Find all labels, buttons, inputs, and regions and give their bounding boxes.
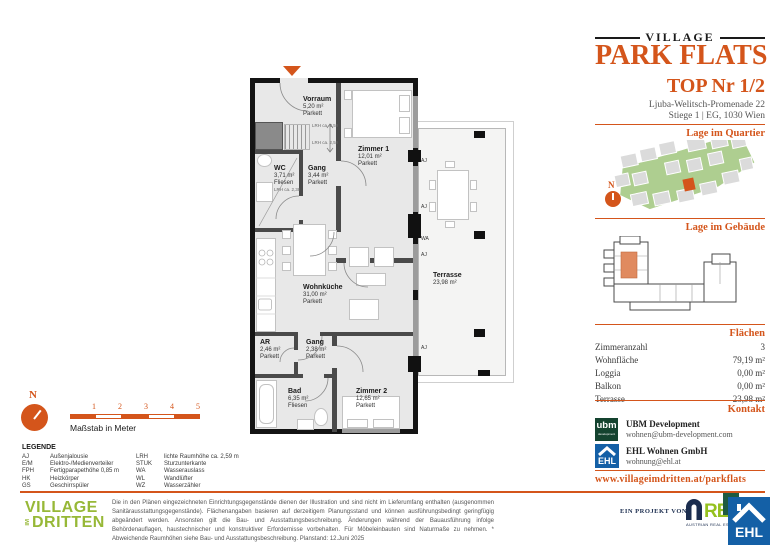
room-label-bad: Bad6,35 m²Fliesen bbox=[288, 388, 308, 410]
building-plan bbox=[600, 236, 750, 320]
ehl-logo: EHL bbox=[595, 444, 619, 468]
area-label: Balkon bbox=[595, 380, 621, 393]
ubm-logo-subtext: development bbox=[595, 433, 618, 436]
scale-tick: 2 bbox=[96, 402, 122, 411]
legend-row: HKHeizkörper bbox=[22, 476, 122, 483]
legend-row: WLWandlüfter bbox=[136, 476, 246, 483]
legend-row: LRHlichte Raumhöhe ca. 2,59 m bbox=[136, 454, 246, 461]
scalebar bbox=[70, 414, 200, 419]
village-im-dritten-logo: VILLAGE IM DRITTEN bbox=[25, 500, 105, 530]
areas-table: Zimmeranzahl 3 Wohnfläche 79,19 m² Loggi… bbox=[595, 341, 765, 406]
scalebar-caption: Maßstab in Meter bbox=[70, 423, 136, 433]
room-label-wohnkueche: Wohnküche31,00 m²Parkett bbox=[303, 284, 343, 306]
room-label-zimmer1: Zimmer 112,01 m²Parkett bbox=[358, 146, 389, 168]
website-link[interactable]: www.villageimdritten.at/parkflats bbox=[595, 474, 765, 485]
brand-rule bbox=[720, 37, 765, 39]
compass-needle bbox=[33, 410, 41, 420]
plan-compass-icon bbox=[21, 404, 48, 431]
scale-tick: 1 bbox=[70, 402, 96, 411]
section-quartier-label: Lage im Quartier bbox=[595, 128, 765, 139]
area-value: 79,19 m² bbox=[733, 354, 765, 367]
legend: LEGENDE AJAußenjalousie E/MElektro-/Medi… bbox=[22, 444, 246, 490]
quartier-map bbox=[598, 140, 765, 216]
lrh-note: LRH ca. 2,59 bbox=[312, 140, 338, 145]
aj-label: AJ bbox=[421, 345, 427, 351]
legend-col2: LRHlichte Raumhöhe ca. 2,59 m STUKSturzu… bbox=[136, 454, 246, 490]
aj-label: AJ bbox=[421, 204, 427, 210]
village-logo-line2: DRITTEN bbox=[32, 515, 105, 530]
section-flaechen-label: Flächen bbox=[595, 328, 765, 339]
are-arch-icon bbox=[684, 496, 704, 521]
ubm-logo-text: ubm bbox=[595, 418, 618, 433]
ehl-name: EHL Wohnen GmbH bbox=[626, 446, 707, 456]
scale-segment bbox=[122, 414, 147, 419]
plan-compass-n-label: N bbox=[29, 389, 37, 401]
ehl-roof-icon bbox=[595, 444, 619, 456]
scale-segment bbox=[175, 414, 200, 419]
room-label-wc: WC3,71 m²FliesenLRH ca. 2,38 bbox=[274, 165, 300, 193]
ehl-email-link[interactable]: wohnung@ehl.at bbox=[626, 457, 681, 466]
area-label: Zimmeranzahl bbox=[595, 341, 647, 354]
scale-segment bbox=[70, 414, 95, 419]
table-row: Loggia 0,00 m² bbox=[595, 367, 765, 380]
area-value: 0,00 m² bbox=[737, 380, 765, 393]
village-logo-im: IM bbox=[25, 519, 31, 526]
scalebar-ticks: 1 2 3 4 5 bbox=[70, 402, 200, 411]
divider bbox=[595, 124, 765, 125]
lrh-note: LRH ca. 2,59 bbox=[312, 123, 338, 128]
table-row: Balkon 0,00 m² bbox=[595, 380, 765, 393]
compass-needle bbox=[612, 193, 614, 200]
ubm-logo: ubm development bbox=[595, 418, 618, 441]
area-label: Wohnfläche bbox=[595, 354, 638, 367]
legend-col1: AJAußenjalousie E/MElektro-/Medienvertei… bbox=[22, 454, 122, 490]
room-label-zimmer2: Zimmer 212,65 m²Parkett bbox=[356, 388, 387, 410]
address-line1: Ljuba-Welitsch-Promenade 22 bbox=[595, 100, 765, 110]
map-compass-icon bbox=[605, 191, 621, 207]
room-label-gang1: Gang3,44 m²Parkett bbox=[308, 165, 328, 187]
room-label-gang2: Gang2,38 m²Parkett bbox=[306, 339, 326, 361]
disclaimer-text: Die in den Plänen eingezeichneten Einric… bbox=[112, 499, 494, 544]
room-label-vorraum: Vorraum5,20 m²Parkett bbox=[303, 96, 331, 118]
are-logo: RE bbox=[684, 496, 728, 521]
legend-title: LEGENDE bbox=[22, 444, 246, 451]
scale-segment bbox=[148, 414, 175, 419]
area-label: Loggia bbox=[595, 367, 621, 380]
table-row: Wohnfläche 79,19 m² bbox=[595, 354, 765, 367]
divider bbox=[595, 470, 765, 471]
section-kontakt-label: Kontakt bbox=[595, 404, 765, 415]
map-compass-n-label: N bbox=[608, 180, 615, 190]
legend-row: STUKSturzunterkante bbox=[136, 461, 246, 468]
project-label: EIN PROJEKT VON bbox=[620, 508, 687, 515]
legend-row: GSGeschirrspüler bbox=[22, 483, 122, 490]
ubm-email-link[interactable]: wohnen@ubm-development.com bbox=[626, 430, 733, 439]
ehl-footer-logo: EHL bbox=[728, 497, 770, 545]
floorplan-page: Vorraum5,20 m²Parkett Zimmer 112,01 m²Pa… bbox=[0, 0, 770, 545]
unit-title: TOP Nr 1/2 bbox=[595, 75, 765, 98]
legend-row: FPHFertigparapethöhe 0,85 m bbox=[22, 468, 122, 475]
wa-label: WA bbox=[421, 236, 429, 242]
legend-row: WZWasserzähler bbox=[136, 483, 246, 490]
legend-row: WAWasserauslass bbox=[136, 468, 246, 475]
brand-main-title: PARK FLATS bbox=[595, 40, 765, 72]
scale-tick: 3 bbox=[122, 402, 148, 411]
scale-segment bbox=[95, 414, 122, 419]
area-value: 3 bbox=[761, 341, 766, 354]
ehl-roof-icon bbox=[728, 497, 770, 523]
legend-row: AJAußenjalousie bbox=[22, 454, 122, 461]
ehl-footer-logo-text: EHL bbox=[728, 523, 770, 541]
ehl-logo-text: EHL bbox=[595, 456, 619, 466]
ubm-name: UBM Development bbox=[626, 419, 700, 429]
scale-tick: 4 bbox=[148, 402, 174, 411]
legend-row: E/MElektro-/Medienverteiler bbox=[22, 461, 122, 468]
village-logo-line1: VILLAGE bbox=[25, 500, 105, 515]
divider bbox=[595, 324, 765, 325]
divider bbox=[595, 218, 765, 219]
aj-label: AJ bbox=[421, 158, 427, 164]
room-label-terrasse: Terrasse23,98 m² bbox=[433, 272, 462, 287]
table-row: Zimmeranzahl 3 bbox=[595, 341, 765, 354]
scale-tick: 5 bbox=[174, 402, 200, 411]
address-line2: Stiege 1 | EG, 1030 Wien bbox=[595, 111, 765, 121]
divider bbox=[595, 400, 765, 401]
aj-label: AJ bbox=[421, 252, 427, 258]
room-label-ar: AR2,46 m²Parkett bbox=[260, 339, 280, 361]
section-gebaeude-label: Lage im Gebäude bbox=[595, 222, 765, 233]
footer-divider bbox=[20, 491, 765, 493]
brand-rule bbox=[595, 37, 640, 39]
area-value: 0,00 m² bbox=[737, 367, 765, 380]
